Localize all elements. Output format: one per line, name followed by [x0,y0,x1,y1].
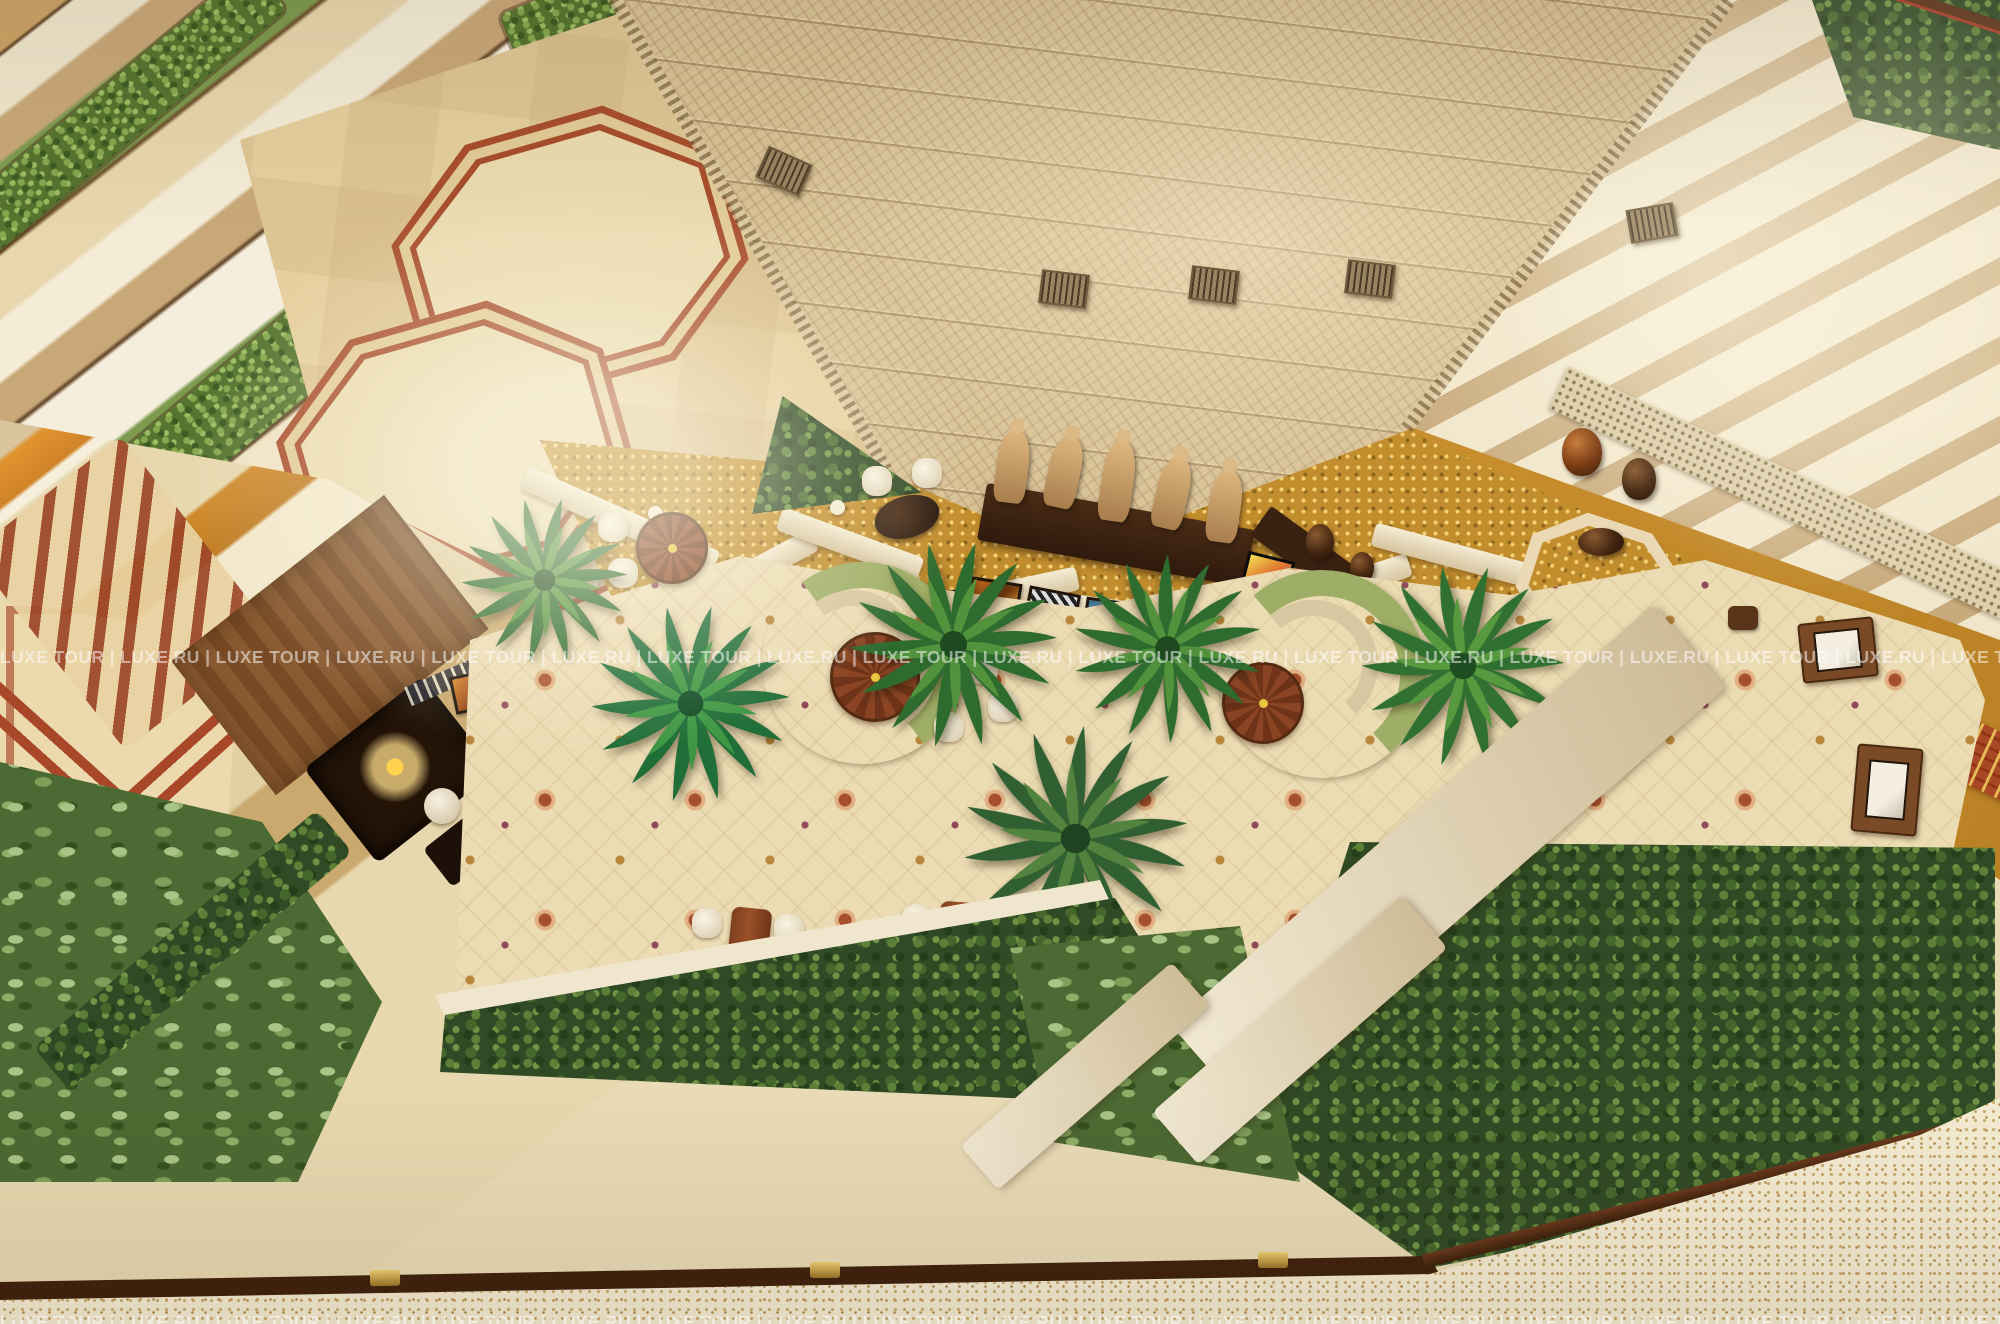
watermark-text-line: LUXE TOUR | LUXE.RU | LUXE TOUR | LUXE.R… [0,645,2000,669]
watermark-text-line-bottom: LUXE TOUR | LUXE.RU | LUXE TOUR | LUXE.R… [0,1310,2000,1324]
atrium-aerial-photo: LUXE TOUR | LUXE.RU | LUXE TOUR | LUXE.R… [0,0,2000,1324]
